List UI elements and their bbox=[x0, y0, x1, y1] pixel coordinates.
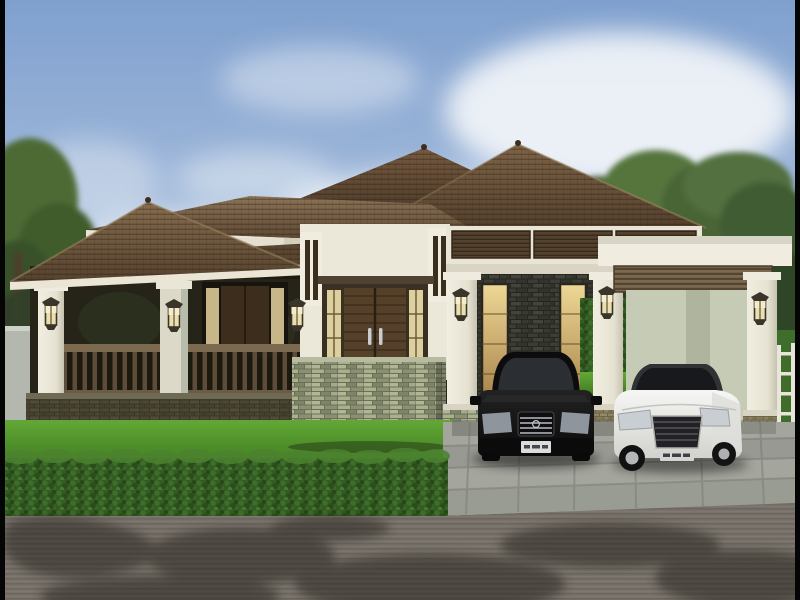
shadow-blob bbox=[270, 516, 390, 540]
wall-lantern bbox=[598, 286, 616, 319]
door-header-trim bbox=[318, 276, 434, 284]
sedan-windshield bbox=[498, 358, 574, 392]
plate-glyph bbox=[542, 445, 548, 449]
pilaster-slot bbox=[441, 236, 446, 296]
tire bbox=[482, 452, 500, 461]
coupe-headlight bbox=[618, 410, 652, 430]
railing-balusters bbox=[64, 352, 318, 392]
column-cap bbox=[743, 272, 781, 280]
sedan-hood-line bbox=[482, 395, 590, 402]
cloud bbox=[220, 46, 420, 114]
sedan-headlight bbox=[560, 412, 590, 434]
fence-rail bbox=[777, 412, 795, 416]
wall-lantern bbox=[42, 297, 60, 330]
sedan-headlight bbox=[482, 412, 512, 434]
tire bbox=[572, 452, 590, 461]
wheel-rim bbox=[719, 449, 730, 460]
door-sidelight bbox=[271, 288, 284, 350]
louver-panel bbox=[452, 231, 530, 258]
pilaster-slot bbox=[433, 236, 438, 296]
porch-base-coping bbox=[26, 393, 322, 399]
roof-finial bbox=[145, 197, 151, 203]
fence-rail bbox=[777, 392, 795, 396]
pilaster-slot bbox=[313, 240, 318, 300]
roof-finial bbox=[421, 144, 427, 150]
coupe-headlight bbox=[700, 408, 730, 426]
wheel-rim bbox=[626, 452, 639, 465]
plate-glyph bbox=[663, 454, 670, 458]
fence-rail bbox=[777, 352, 795, 356]
rendered-photo bbox=[0, 0, 800, 600]
flat-roof-face bbox=[598, 244, 792, 266]
column-base-cap bbox=[743, 410, 781, 416]
hedge-body bbox=[2, 458, 448, 518]
column-cap bbox=[443, 272, 481, 280]
asphalt-road bbox=[0, 503, 800, 600]
entry bbox=[292, 224, 464, 446]
plate-glyph bbox=[672, 454, 681, 458]
plate-glyph bbox=[524, 445, 530, 449]
side-mirror bbox=[591, 396, 602, 405]
wall-lantern bbox=[751, 292, 769, 325]
door-handle bbox=[368, 328, 372, 345]
wall-lantern bbox=[452, 288, 470, 321]
scene-render bbox=[0, 0, 800, 600]
pilaster-slot bbox=[305, 240, 310, 300]
fence-rail bbox=[777, 372, 795, 376]
plate-characters bbox=[663, 454, 690, 458]
left-border-bar bbox=[0, 0, 5, 600]
wall-lantern bbox=[288, 298, 306, 331]
plate-glyph bbox=[532, 445, 540, 449]
right-border-bar bbox=[795, 0, 800, 600]
door-sidelight bbox=[206, 288, 219, 350]
coupe-grille bbox=[652, 416, 702, 448]
interior-reflection bbox=[78, 292, 162, 352]
plate-glyph bbox=[683, 454, 690, 458]
door-handle bbox=[379, 328, 383, 345]
plate-characters bbox=[524, 445, 548, 449]
entry-pilaster bbox=[300, 232, 322, 306]
side-mirror bbox=[470, 396, 481, 405]
railing-top bbox=[64, 344, 318, 352]
roof-finial bbox=[515, 140, 521, 146]
hedge-front bbox=[2, 448, 450, 518]
